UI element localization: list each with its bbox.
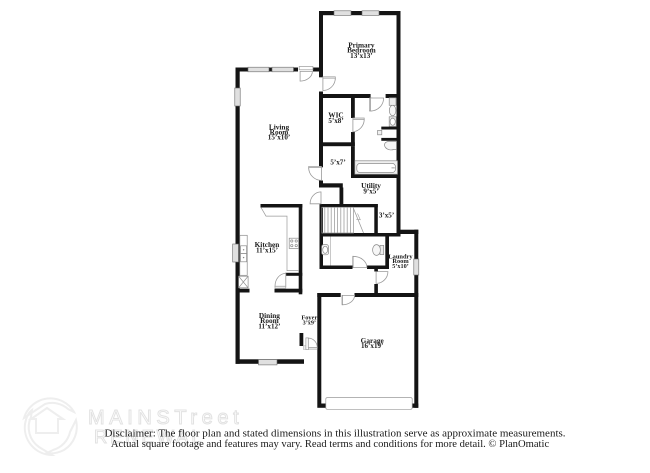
svg-text:5’x10’: 5’x10’ [392, 263, 409, 270]
svg-text:3’x9’: 3’x9’ [303, 319, 316, 326]
svg-text:16’x19’: 16’x19’ [361, 342, 383, 350]
svg-text:Actual square footage and feat: Actual square footage and features may v… [111, 439, 550, 450]
svg-text:5’x7’: 5’x7’ [330, 159, 345, 167]
svg-text:13’x13’: 13’x13’ [350, 52, 372, 60]
svg-text:Disclaimer: The floor plan and: Disclaimer: The floor plan and stated di… [104, 428, 565, 440]
svg-text:11’x15’: 11’x15’ [256, 246, 278, 254]
svg-text:9’x5’: 9’x5’ [363, 188, 378, 196]
svg-text:11’x12’: 11’x12’ [258, 322, 280, 330]
svg-text:5’x8’: 5’x8’ [328, 117, 343, 125]
svg-text:15’x10’: 15’x10’ [268, 134, 290, 142]
svg-text:3’x5’: 3’x5’ [379, 212, 394, 220]
